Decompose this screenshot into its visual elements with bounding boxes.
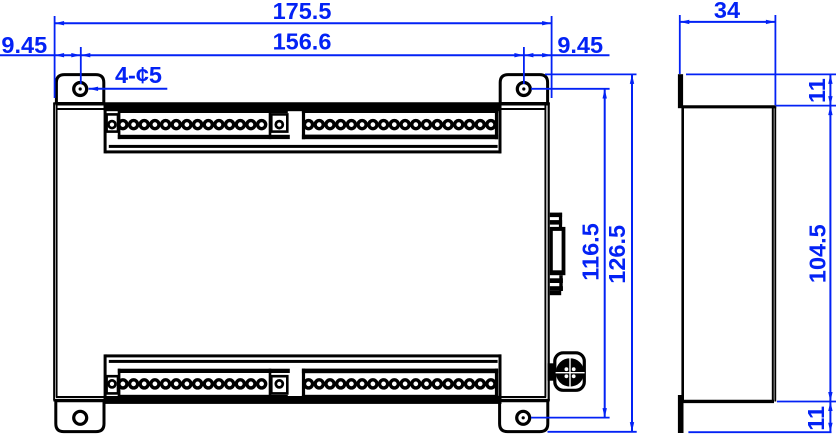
svg-text:11: 11 xyxy=(804,78,830,103)
svg-text:175.5: 175.5 xyxy=(273,0,332,24)
svg-text:116.5: 116.5 xyxy=(578,223,604,281)
svg-text:126.5: 126.5 xyxy=(604,225,630,284)
svg-text:11: 11 xyxy=(803,406,829,431)
svg-text:4-¢5: 4-¢5 xyxy=(115,62,162,88)
svg-text:104.5: 104.5 xyxy=(804,224,830,283)
svg-text:156.6: 156.6 xyxy=(273,28,332,54)
svg-text:9.45: 9.45 xyxy=(1,32,47,58)
svg-text:34: 34 xyxy=(714,0,740,23)
svg-text:9.45: 9.45 xyxy=(557,32,603,58)
